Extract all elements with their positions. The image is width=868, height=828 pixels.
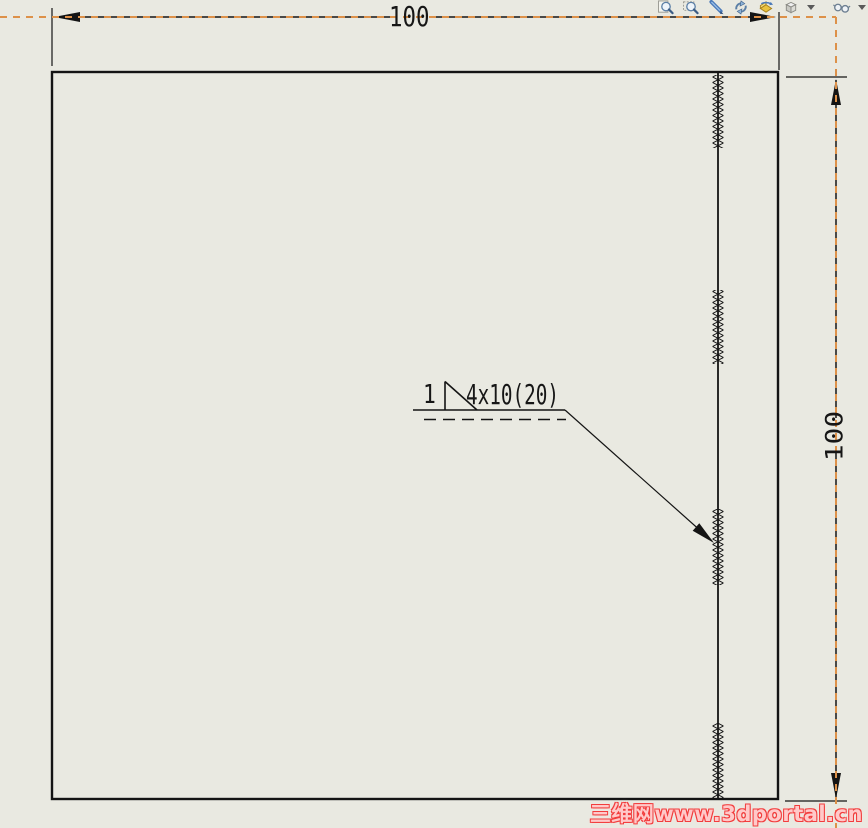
- hide-show-items-dropdown-icon[interactable]: [858, 5, 866, 10]
- drawing-canvas: 100 100 1 4x10(20): [0, 0, 868, 828]
- hide-show-items-icon[interactable]: [833, 0, 851, 15]
- dimension-right-value[interactable]: 100: [823, 406, 847, 466]
- 3d-drawing-view-icon[interactable]: [757, 0, 775, 15]
- zoom-in-out-icon[interactable]: [707, 0, 725, 15]
- view-orientation-dropdown-icon[interactable]: [807, 5, 815, 10]
- weld-symbol[interactable]: [413, 382, 714, 544]
- watermark-text: 三维网www.3dportal.cn: [590, 798, 863, 828]
- part-outline[interactable]: [52, 72, 778, 799]
- rotate-view-icon[interactable]: [732, 0, 750, 15]
- drawing-linework: [0, 0, 868, 828]
- dimension-top-value[interactable]: 100: [389, 3, 429, 31]
- view-orientation-icon[interactable]: [782, 0, 800, 15]
- view-toolbar: [657, 0, 866, 15]
- weld-reference-number[interactable]: 1: [423, 382, 436, 408]
- weld-spec-text[interactable]: 4x10(20): [466, 381, 559, 409]
- sheet-boundary: [0, 17, 836, 828]
- zoom-to-area-icon[interactable]: [682, 0, 700, 15]
- zoom-to-fit-icon[interactable]: [657, 0, 675, 15]
